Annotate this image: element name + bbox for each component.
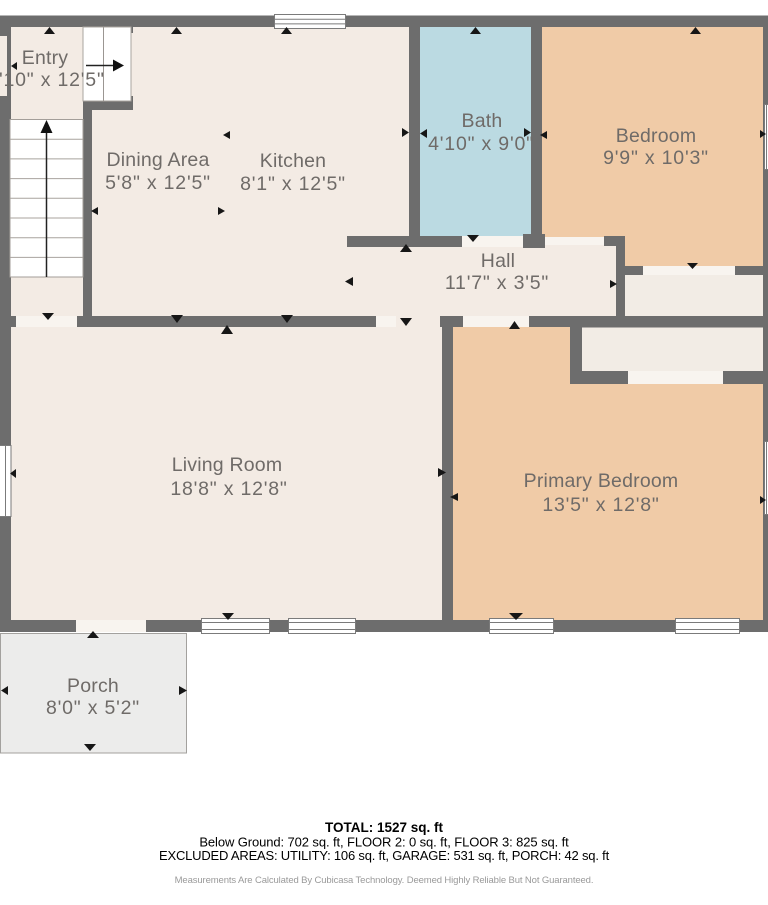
svg-text:8'0" x 5'2": 8'0" x 5'2" [46,697,140,719]
svg-text:Kitchen: Kitchen [260,150,326,172]
svg-text:Porch: Porch [67,675,119,697]
svg-text:EXCLUDED AREAS: UTILITY: 106 s: EXCLUDED AREAS: UTILITY: 106 sq. ft, GAR… [159,848,610,863]
svg-text:Bath: Bath [462,110,503,132]
svg-text:11'7" x 3'5": 11'7" x 3'5" [445,272,549,294]
svg-text:5'8" x 12'5": 5'8" x 12'5" [105,172,211,194]
svg-text:Living Room: Living Room [172,454,283,476]
svg-text:18'8" x 12'8": 18'8" x 12'8" [170,478,287,500]
svg-text:Bedroom: Bedroom [616,125,697,147]
svg-text:TOTAL: 1527 sq. ft: TOTAL: 1527 sq. ft [325,820,444,835]
svg-text:9'9" x 10'3": 9'9" x 10'3" [603,147,709,169]
svg-text:13'5" x 12'8": 13'5" x 12'8" [542,494,659,516]
svg-text:Measurements Are Calculated By: Measurements Are Calculated By Cubicasa … [175,875,594,886]
svg-text:3'10" x 12'5": 3'10" x 12'5" [0,69,105,91]
svg-text:4'10" x 9'0": 4'10" x 9'0" [428,133,534,155]
svg-text:Entry: Entry [22,47,69,69]
svg-text:Hall: Hall [481,250,515,272]
svg-text:Primary Bedroom: Primary Bedroom [524,470,679,492]
svg-text:8'1" x 12'5": 8'1" x 12'5" [240,173,346,195]
svg-text:Dining Area: Dining Area [106,149,209,171]
